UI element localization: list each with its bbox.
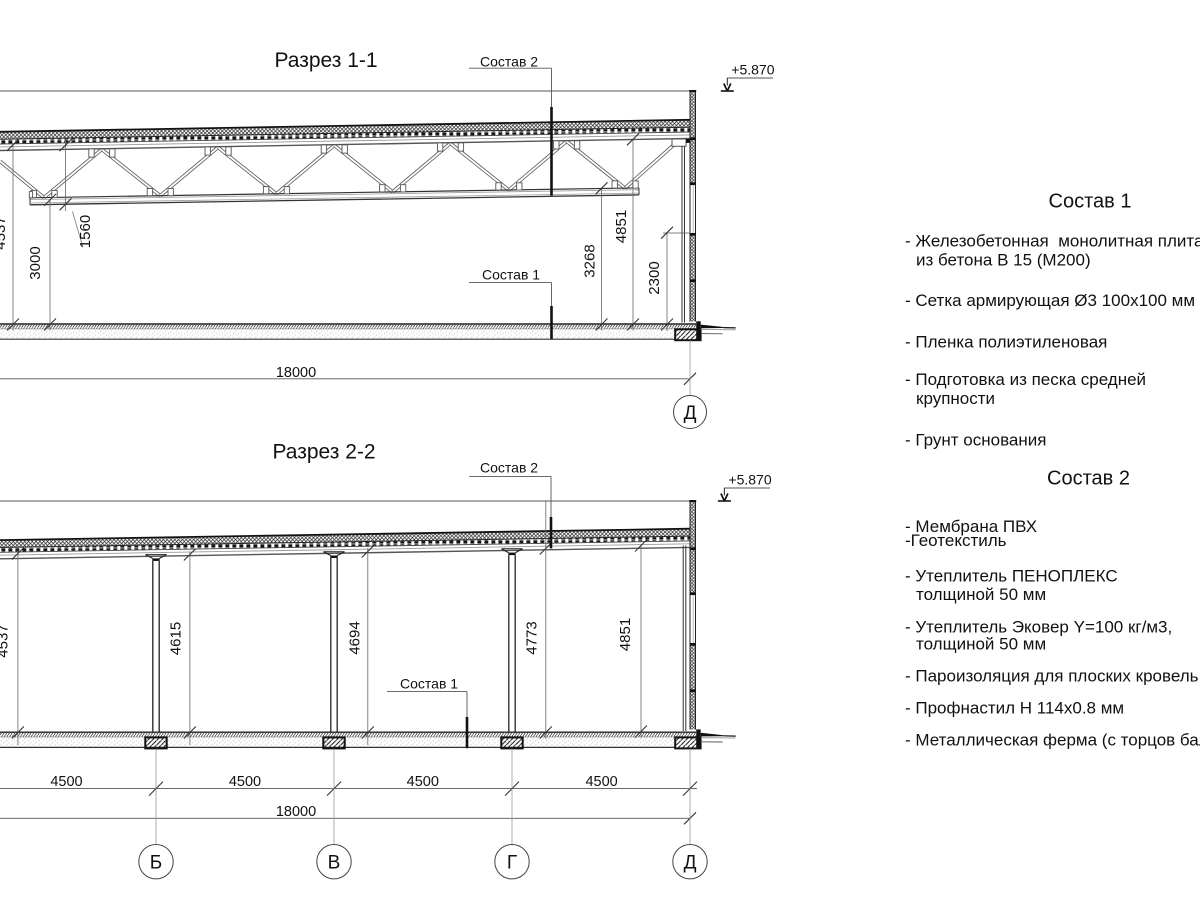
svg-text:4773: 4773 (524, 621, 541, 654)
svg-text:4537: 4537 (0, 216, 9, 249)
svg-text:4500: 4500 (585, 774, 617, 790)
svg-text:- Профнастил Н 114х0.8 мм: - Профнастил Н 114х0.8 мм (905, 699, 1124, 718)
svg-text:толщиной 50 мм: толщиной 50 мм (916, 634, 1046, 653)
svg-text:Разрез 1-1: Разрез 1-1 (274, 49, 377, 72)
svg-text:+5.870: +5.870 (728, 472, 771, 488)
svg-text:18000: 18000 (276, 804, 316, 820)
svg-text:Состав 2: Состав 2 (480, 54, 538, 70)
svg-text:из бетона В 15 (М200): из бетона В 15 (М200) (916, 250, 1091, 269)
svg-text:Г: Г (507, 853, 517, 874)
svg-text:Состав 2: Состав 2 (1047, 467, 1130, 489)
svg-text:- Металлическая ферма (с торцо: - Металлическая ферма (с торцов балки (905, 731, 1200, 750)
svg-text:- Железобетонная монолитная п: - Железобетонная монолитная плита (905, 232, 1200, 251)
svg-text:- Утеплитель ПЕНОПЛЕКС: - Утеплитель ПЕНОПЛЕКС (905, 566, 1118, 585)
svg-text:Состав 1: Состав 1 (482, 267, 540, 283)
svg-text:1560: 1560 (77, 215, 94, 248)
svg-text:Состав 1: Состав 1 (400, 676, 458, 692)
svg-text:Состав 2: Состав 2 (480, 460, 538, 476)
svg-text:4615: 4615 (168, 622, 185, 655)
svg-text:крупности: крупности (916, 389, 995, 408)
svg-text:4851: 4851 (617, 618, 634, 651)
svg-text:4694: 4694 (347, 621, 364, 654)
svg-text:- Грунт основания: - Грунт основания (905, 431, 1046, 450)
svg-text:Состав 1: Состав 1 (1049, 191, 1132, 213)
svg-text:-Геотекстиль: -Геотекстиль (905, 531, 1007, 550)
svg-text:Д: Д (684, 853, 697, 874)
svg-text:- Пароизоляция для плоских кро: - Пароизоляция для плоских кровель (905, 666, 1199, 685)
svg-text:Разрез 2-2: Разрез 2-2 (272, 441, 375, 464)
svg-text:3268: 3268 (582, 244, 599, 277)
svg-text:- Пленка полиэтиленовая: - Пленка полиэтиленовая (905, 333, 1107, 352)
svg-text:- Подготовка из песка средней: - Подготовка из песка средней (905, 370, 1146, 389)
svg-text:- Сетка армирующая Ø3 100х100: - Сетка армирующая Ø3 100х100 мм (905, 291, 1195, 310)
svg-text:3000: 3000 (27, 246, 44, 279)
svg-text:18000: 18000 (276, 365, 316, 381)
svg-text:В: В (328, 853, 341, 874)
svg-text:толщиной 50 мм: толщиной 50 мм (916, 585, 1046, 604)
svg-text:Д: Д (684, 403, 697, 424)
svg-text:2300: 2300 (646, 261, 663, 294)
svg-text:4500: 4500 (229, 774, 261, 790)
svg-text:4500: 4500 (407, 774, 439, 790)
svg-text:4851: 4851 (613, 210, 630, 243)
svg-text:4537: 4537 (0, 624, 11, 657)
svg-text:Б: Б (150, 853, 162, 874)
svg-text:4500: 4500 (50, 774, 82, 790)
svg-text:+5.870: +5.870 (731, 62, 774, 78)
